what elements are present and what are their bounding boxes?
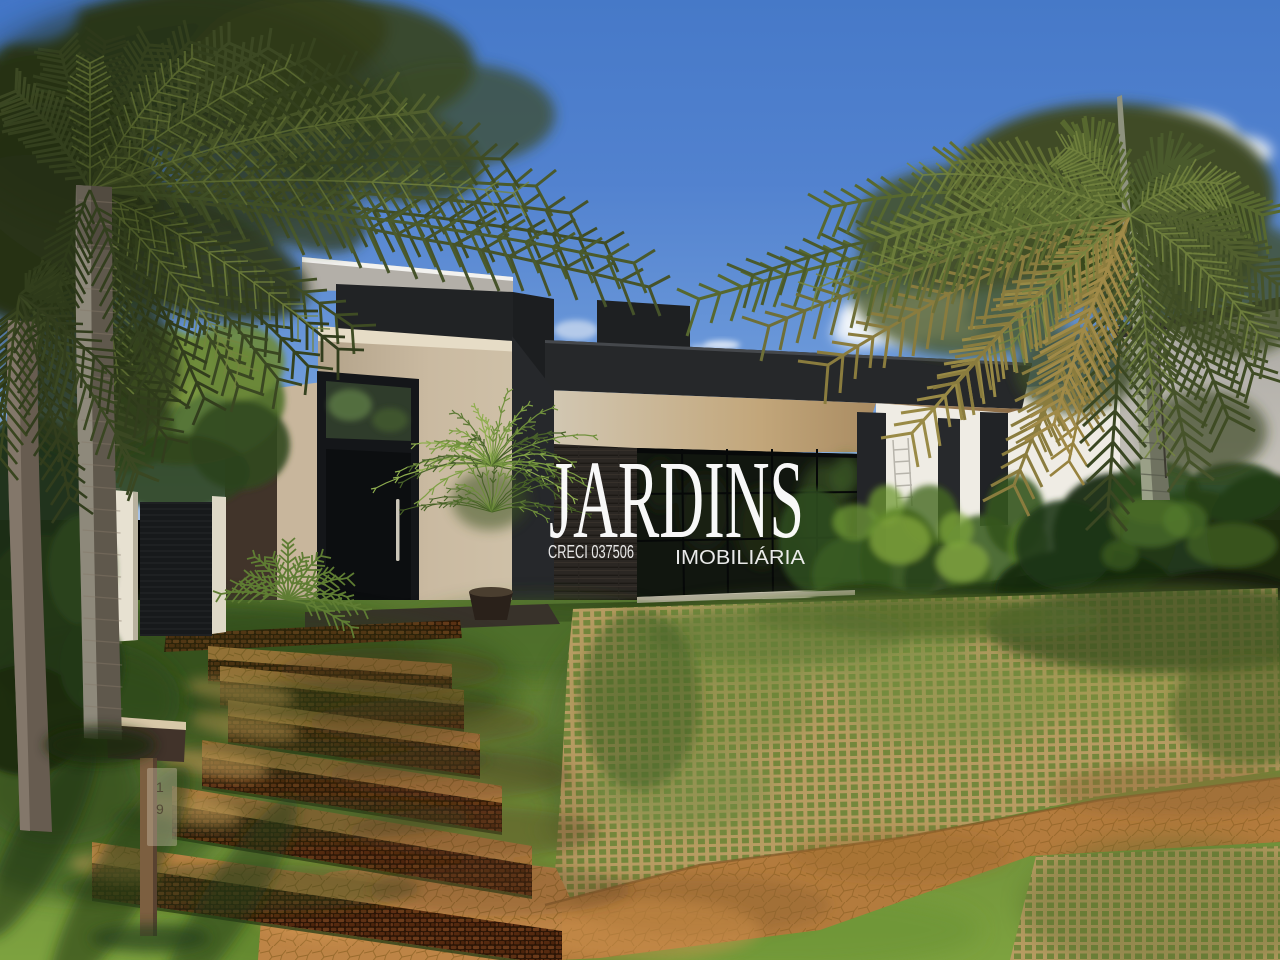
svg-text:1: 1 (156, 779, 164, 795)
svg-text:CRECI 037506: CRECI 037506 (548, 542, 634, 562)
svg-text:9: 9 (156, 801, 164, 817)
svg-text:IMOBILIÁRIA: IMOBILIÁRIA (675, 546, 806, 569)
